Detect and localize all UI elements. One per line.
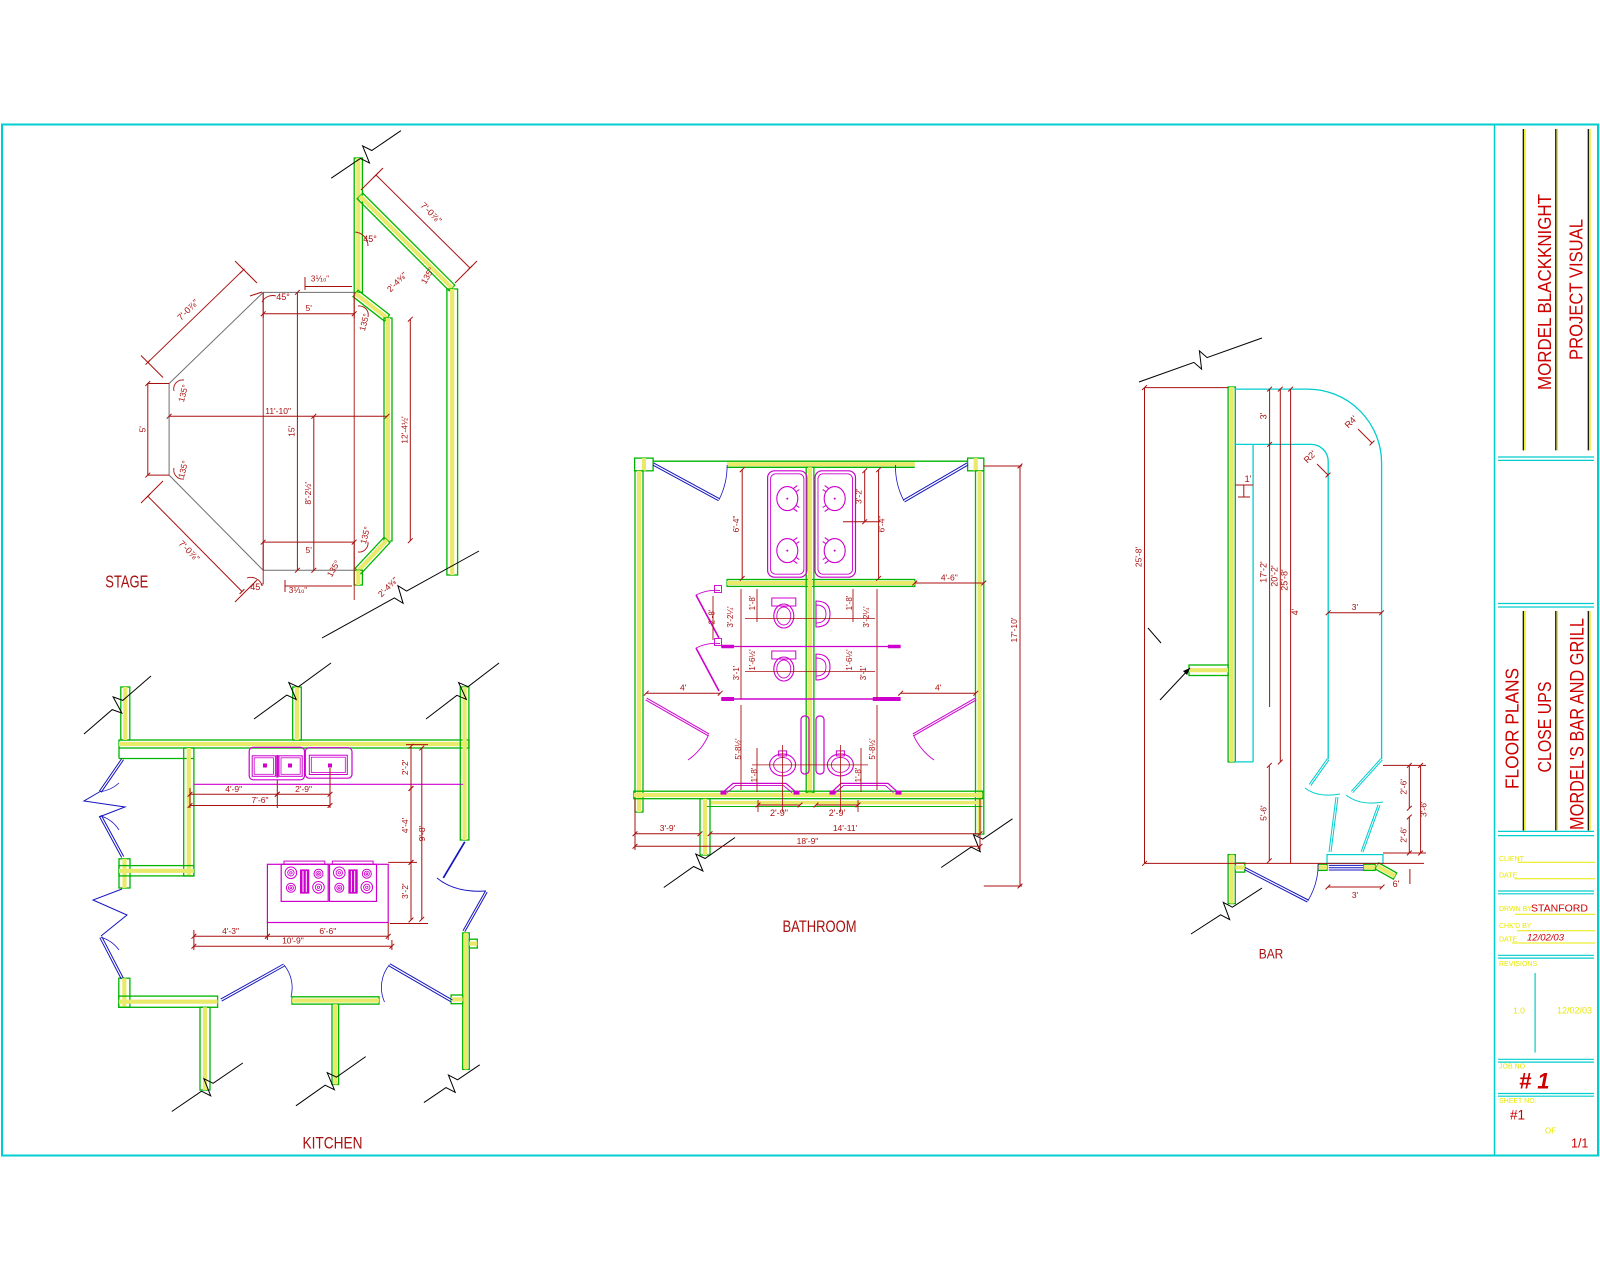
svg-text:7'-6": 7'-6" (252, 795, 269, 805)
svg-text:3'-2': 3'-2' (854, 488, 864, 504)
svg-text:2'-9": 2'-9" (770, 808, 788, 818)
svg-text:2'-9": 2'-9" (295, 784, 312, 794)
svg-text:45°: 45° (276, 292, 290, 302)
svg-text:15': 15' (286, 425, 296, 436)
svg-text:5': 5' (137, 426, 147, 433)
svg-text:17'-2': 17'-2' (1259, 561, 1269, 583)
svg-text:1'-8': 1'-8' (854, 767, 863, 782)
svg-text:4': 4' (1290, 608, 1300, 615)
svg-text:2'-6': 2'-6' (1398, 779, 1408, 795)
svg-text:6'-6": 6'-6" (319, 926, 336, 936)
svg-text:SHEET NO.: SHEET NO. (1499, 1098, 1537, 1105)
svg-text:4': 4' (935, 683, 942, 693)
svg-text:3'-2¼': 3'-2¼' (862, 606, 871, 628)
svg-text:12'-4½': 12'-4½' (399, 416, 409, 444)
svg-text:6'-4": 6'-4" (731, 516, 741, 533)
svg-text:1'-6½': 1'-6½' (748, 649, 757, 671)
svg-text:1/1: 1/1 (1571, 1137, 1588, 1151)
svg-text:FLOOR PLANS: FLOOR PLANS (1503, 668, 1523, 789)
svg-text:5'-8½': 5'-8½' (868, 738, 877, 760)
svg-text:5'-6': 5'-6' (1258, 805, 1268, 821)
svg-text:10'-9": 10'-9" (282, 936, 304, 946)
svg-text:6': 6' (1393, 879, 1400, 889)
svg-text:3'-2¼': 3'-2¼' (726, 606, 735, 628)
svg-text:4'-9": 4'-9" (225, 784, 242, 794)
svg-text:MORDEL'S BAR AND GRILL: MORDEL'S BAR AND GRILL (1568, 618, 1589, 830)
svg-text:5'-8½': 5'-8½' (734, 738, 743, 760)
svg-text:1'-6½': 1'-6½' (845, 649, 854, 671)
svg-text:3'-1': 3'-1' (859, 665, 868, 680)
svg-text:3'-6': 3'-6' (1419, 801, 1429, 817)
svg-text:4': 4' (680, 683, 687, 693)
svg-text:STANFORD: STANFORD (1531, 903, 1588, 915)
svg-text:CLOSE UPS: CLOSE UPS (1535, 682, 1555, 773)
svg-text:BATHROOM: BATHROOM (783, 917, 857, 936)
svg-text:1'-8': 1'-8' (748, 595, 757, 610)
svg-text:KITCHEN: KITCHEN (303, 1134, 363, 1153)
svg-text:12/02/03: 12/02/03 (1557, 1006, 1592, 1016)
svg-text:1': 1' (1245, 474, 1252, 484)
svg-text:2'-2': 2'-2' (400, 759, 410, 775)
svg-text:3': 3' (1352, 602, 1359, 612)
svg-text:4'-3": 4'-3" (222, 926, 239, 936)
svg-text:BAR: BAR (1259, 947, 1284, 962)
svg-text:3⅒": 3⅒" (289, 586, 307, 595)
svg-text:5': 5' (306, 303, 313, 313)
svg-text:20'-2': 20'-2' (1269, 565, 1279, 587)
svg-text:6'-4": 6'-4" (877, 516, 887, 533)
svg-text:#1: #1 (1510, 1108, 1525, 1123)
svg-text:STAGE: STAGE (105, 571, 148, 591)
svg-text:5': 5' (306, 545, 313, 555)
svg-text:#1: #1 (1519, 1069, 1555, 1094)
svg-text:25'-8': 25'-8' (1134, 546, 1144, 567)
svg-text:8'-2½': 8'-2½' (303, 482, 313, 505)
svg-text:2'-8': 2'-8' (708, 609, 717, 624)
svg-text:45°: 45° (250, 582, 264, 592)
svg-text:18'-9": 18'-9" (797, 836, 819, 846)
svg-text:9'-8': 9'-8' (417, 825, 427, 841)
svg-text:1.0: 1.0 (1513, 1006, 1525, 1016)
svg-text:3'-2': 3'-2' (400, 883, 410, 899)
svg-text:3': 3' (1259, 412, 1269, 419)
svg-text:45°: 45° (363, 234, 377, 244)
svg-text:17'-10': 17'-10' (1009, 617, 1019, 642)
svg-text:DATE: DATE (1499, 937, 1517, 944)
svg-text:12/02/03: 12/02/03 (1527, 933, 1565, 944)
svg-text:CHK'D BY: CHK'D BY (1499, 923, 1532, 930)
svg-text:2'-6': 2'-6' (1398, 827, 1408, 843)
svg-text:3'-1': 3'-1' (732, 665, 741, 680)
svg-text:3⅒": 3⅒" (311, 275, 329, 284)
svg-text:3'-9': 3'-9' (660, 823, 676, 833)
svg-text:MORDEL BLACKKNIGHT: MORDEL BLACKKNIGHT (1535, 194, 1555, 390)
svg-text:3': 3' (1352, 890, 1359, 900)
svg-text:REVISIONS: REVISIONS (1499, 961, 1537, 968)
svg-text:4'-4': 4'-4' (400, 817, 410, 833)
svg-text:OF: OF (1545, 1127, 1556, 1136)
svg-text:DRWN BY: DRWN BY (1499, 906, 1532, 913)
svg-text:11'-10": 11'-10" (265, 406, 291, 416)
svg-text:PROJECT VISUAL: PROJECT VISUAL (1567, 219, 1587, 360)
svg-text:14'-11': 14'-11' (833, 823, 858, 833)
svg-text:4'-6": 4'-6" (941, 573, 958, 583)
svg-text:2'-9': 2'-9' (829, 808, 846, 818)
svg-text:1'-8': 1'-8' (750, 767, 759, 782)
svg-text:25'-8': 25'-8' (1280, 569, 1290, 591)
